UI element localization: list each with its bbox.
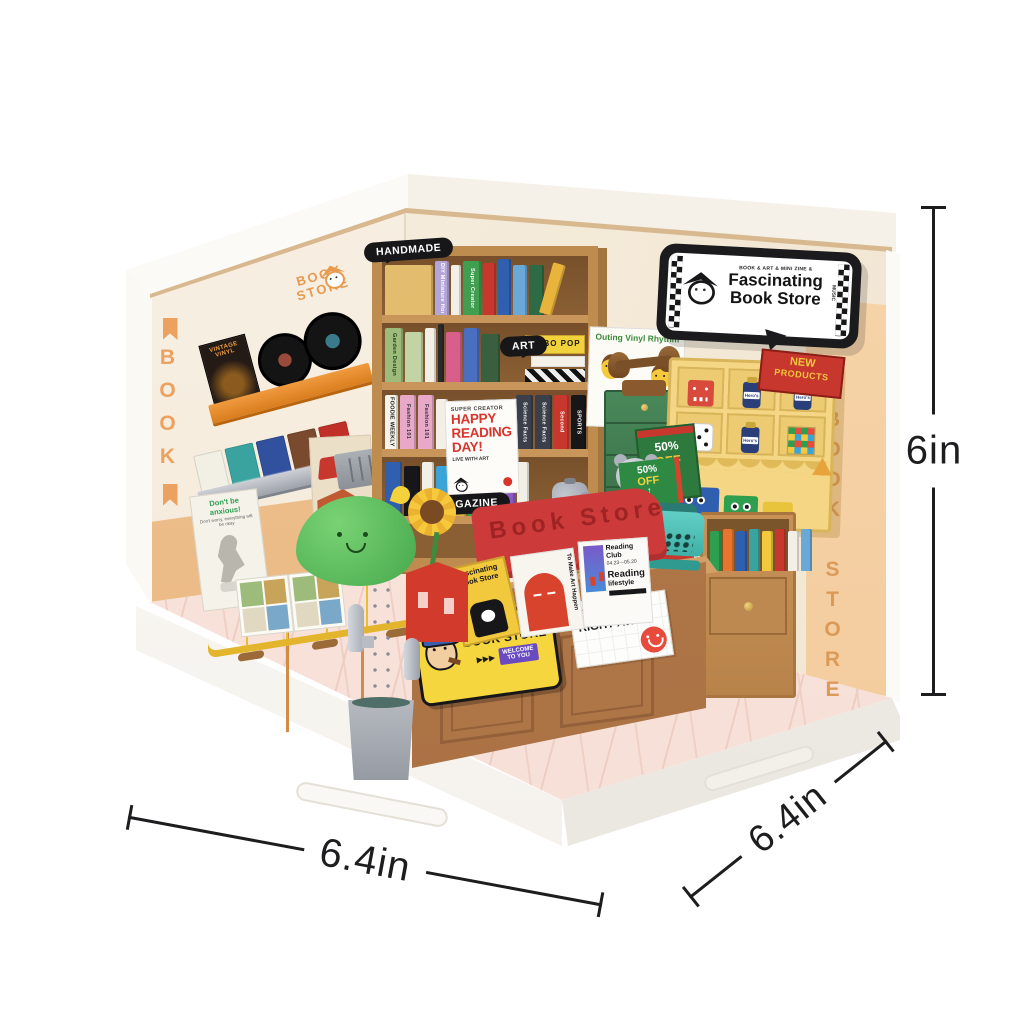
white-book	[531, 356, 585, 367]
left-wall-vertical-text: BOOK	[155, 312, 185, 512]
book-spine	[438, 324, 444, 382]
book-subtitle: lifestyle	[608, 579, 646, 589]
book-spine: Super Creator	[463, 261, 481, 315]
left-wall-book-text: BOOK	[155, 346, 179, 478]
height-dimension: 6in	[908, 206, 978, 696]
book-spine: FOODIE WEEKLY	[385, 395, 398, 449]
new-products-plate: NEW PRODUCTS	[758, 348, 846, 399]
cover-bar	[609, 589, 647, 597]
book-spine	[425, 328, 436, 382]
cubby	[676, 366, 725, 409]
cabinet-drawer	[709, 577, 787, 635]
cover-art	[583, 545, 606, 592]
bookmark-icon	[163, 318, 178, 340]
drawer-knob	[641, 404, 648, 411]
product-photo-miniature-bookstore: BOOK BOOK STORE VINTAGE VINYL Don't be a…	[0, 0, 1024, 1024]
sign-title-line2: Book Store	[723, 288, 827, 307]
book-spine	[451, 265, 461, 315]
book-spine	[723, 529, 734, 571]
sunflower-head	[408, 488, 456, 536]
book-spine	[710, 531, 721, 571]
book-spine	[446, 332, 462, 382]
cubby	[777, 415, 826, 458]
book-spine: SPORTS	[571, 395, 586, 449]
shelf-row-art: Garden Design BOBO POP	[382, 323, 588, 390]
base-slot-front	[295, 780, 450, 828]
height-dimension-label: 6in	[902, 415, 966, 488]
checker-border	[668, 255, 683, 327]
book-spine: Second	[554, 395, 569, 449]
red-arch-art	[522, 570, 569, 631]
red-dot-icon	[503, 477, 512, 486]
cubby: Hero's	[726, 413, 775, 456]
book-date: 04.23—05.20	[607, 559, 645, 568]
book-spine	[788, 531, 799, 571]
silver-cactus-sculpture	[336, 566, 428, 780]
book-spine	[498, 259, 511, 315]
book-title: To Make Art Happen	[565, 553, 579, 611]
sign-face: BOOK & ART & MINI ZINE & Fascinating Boo…	[665, 252, 853, 340]
book-spine: Science Facts	[516, 395, 533, 449]
vinyl-record-shelf: VINTAGE VINYL	[193, 291, 370, 423]
arrows-icon: ▶▶▶	[476, 653, 496, 664]
book-spine: Fashion 101	[418, 395, 434, 449]
fascinating-book-store-sign: BOOK & ART & MINI ZINE & Fascinating Boo…	[656, 243, 863, 349]
right-wood-cabinet	[700, 512, 796, 698]
zigzag-book	[525, 369, 585, 382]
book-spine: Garden Design	[385, 328, 403, 382]
cactus-arm	[404, 638, 420, 680]
welcome-badge: WELCOME TO YOU	[498, 643, 539, 666]
display-book-make-art: To Make Art Happen	[510, 548, 585, 638]
book-spine	[385, 265, 433, 315]
sign-side-text: MUSIC	[830, 285, 837, 301]
display-book-reading-club: Reading Club 04.23—05.20 Reading lifesty…	[578, 537, 654, 628]
bookmark-icon	[163, 484, 178, 506]
book-spine	[775, 529, 786, 571]
book-spine: Fashion 101	[400, 395, 416, 449]
book-spine	[762, 531, 773, 571]
pixel-cube-toy	[787, 426, 816, 455]
ghost-box-toy	[687, 380, 714, 407]
width-dimension-label: 6.4in	[300, 827, 430, 894]
poster-note: LIVE WITH ART	[452, 455, 512, 463]
smiley-icon	[639, 625, 668, 654]
comic-page	[235, 574, 294, 637]
shelf-label-art: ART	[500, 335, 548, 357]
book-spine	[464, 328, 479, 382]
poster-title-line: DAY!	[452, 438, 512, 454]
book-spine	[749, 529, 760, 571]
book-title: Reading Club	[605, 542, 643, 560]
book-spine	[513, 265, 527, 315]
book-spine	[483, 263, 496, 315]
happy-reading-day-poster: SUPER CREATOR HAPPY READING DAY! LIVE WI…	[444, 399, 519, 495]
shelf-row-handmade: DIY Miniature HouseSuper Creator	[382, 256, 588, 323]
book-spine	[405, 332, 423, 382]
house-face-icon	[682, 271, 719, 302]
drawer-knob	[744, 602, 753, 611]
cabinet-book-shelf	[707, 519, 789, 571]
ink-bottle: Hero's	[741, 427, 760, 454]
book-spine	[481, 334, 500, 382]
book-spine: Science Facts	[535, 395, 552, 449]
gray-pot	[346, 700, 416, 780]
pot-soil	[352, 697, 410, 708]
book-spine	[801, 529, 812, 571]
cactus-arm	[348, 604, 364, 652]
sign-text: BOOK & ART & MINI ZINE & Fascinating Boo…	[723, 265, 828, 308]
book-spine: DIY Miniature House	[435, 261, 449, 315]
checker-border	[835, 264, 850, 336]
book-spine	[736, 531, 747, 571]
width-dimension: 6.4in	[121, 796, 606, 943]
